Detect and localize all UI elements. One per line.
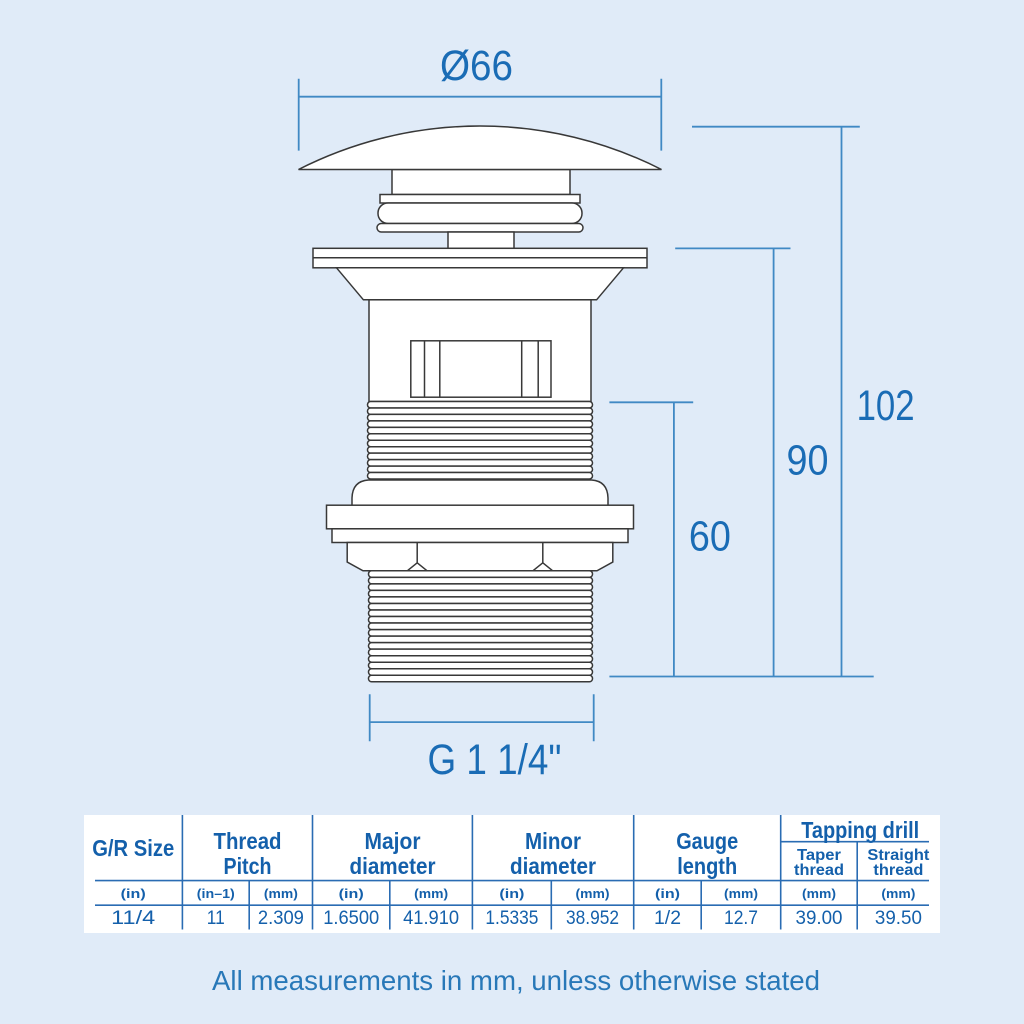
- svg-text:38.952: 38.952: [566, 908, 619, 929]
- svg-text:41.910: 41.910: [403, 908, 459, 929]
- svg-text:1.6500: 1.6500: [323, 908, 379, 929]
- svg-text:diameter: diameter: [510, 853, 596, 879]
- svg-text:(in): (in): [121, 886, 146, 901]
- svg-text:Gauge: Gauge: [676, 828, 738, 854]
- svg-text:G 1 1/4": G 1 1/4": [428, 736, 562, 784]
- svg-text:Pitch: Pitch: [224, 853, 272, 879]
- svg-text:39.50: 39.50: [875, 908, 922, 929]
- svg-text:1/2: 1/2: [654, 908, 681, 929]
- svg-text:thread: thread: [873, 862, 923, 879]
- svg-text:11: 11: [207, 908, 225, 929]
- svg-text:(in): (in): [339, 886, 364, 901]
- svg-text:60: 60: [689, 513, 731, 561]
- svg-text:(mm): (mm): [264, 886, 298, 901]
- svg-text:(mm): (mm): [802, 886, 836, 901]
- svg-text:(mm): (mm): [724, 886, 758, 901]
- svg-text:11/4: 11/4: [111, 908, 156, 929]
- svg-text:2.309: 2.309: [258, 908, 304, 929]
- svg-text:Ø66: Ø66: [440, 42, 513, 90]
- svg-text:102: 102: [857, 382, 915, 430]
- svg-text:39.00: 39.00: [796, 908, 843, 929]
- svg-text:G/R Size: G/R Size: [92, 835, 174, 861]
- svg-text:Thread: Thread: [214, 828, 282, 854]
- svg-text:(mm): (mm): [881, 886, 915, 901]
- svg-text:Tapping drill: Tapping drill: [801, 817, 919, 843]
- svg-text:90: 90: [787, 437, 829, 485]
- svg-text:(in): (in): [655, 886, 680, 901]
- svg-text:(mm): (mm): [414, 886, 448, 901]
- svg-text:Major: Major: [365, 828, 421, 854]
- svg-text:Minor: Minor: [525, 828, 581, 854]
- svg-text:(in–1): (in–1): [197, 886, 235, 901]
- svg-text:thread: thread: [794, 862, 844, 879]
- svg-text:1.5335: 1.5335: [485, 908, 538, 929]
- svg-text:(mm): (mm): [576, 886, 610, 901]
- svg-text:12.7: 12.7: [724, 908, 758, 929]
- svg-text:All measurements in mm, unless: All measurements in mm, unless otherwise…: [212, 965, 820, 996]
- svg-text:length: length: [677, 853, 737, 879]
- svg-text:diameter: diameter: [350, 853, 436, 879]
- svg-text:(in): (in): [499, 886, 524, 901]
